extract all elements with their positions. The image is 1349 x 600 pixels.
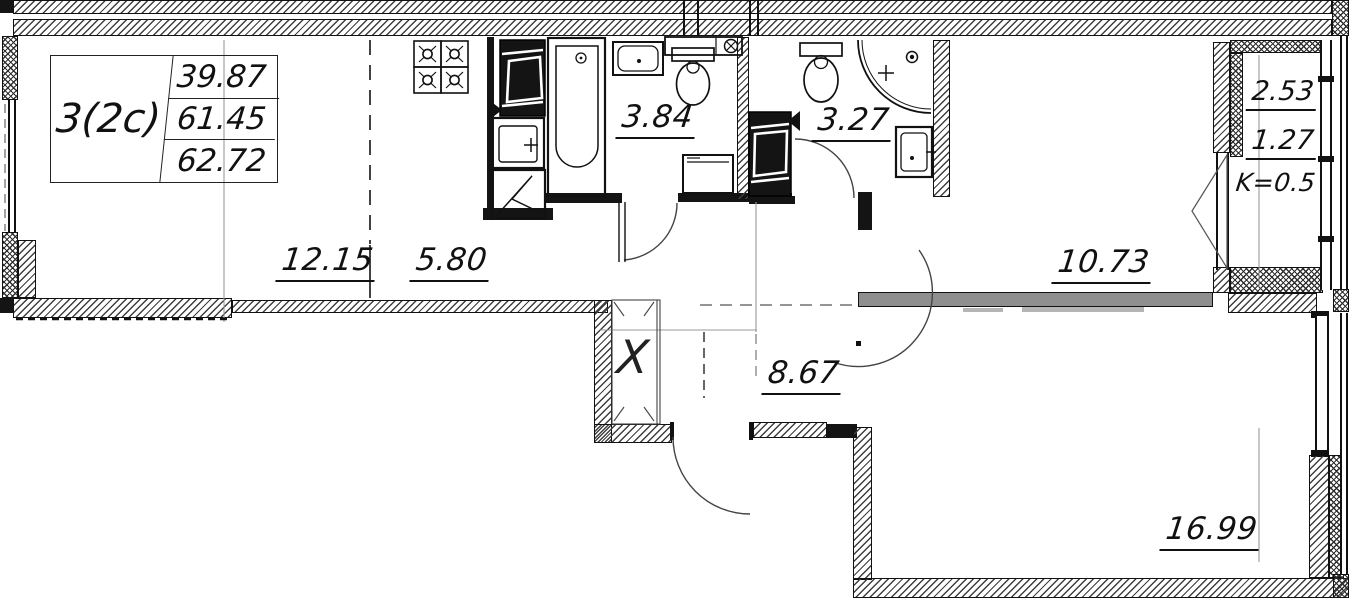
total-area-value: 62.72 (164, 140, 279, 182)
hinge-dot (856, 341, 861, 346)
laundry-sink-icon (492, 118, 544, 168)
door-arc-bathroom (619, 202, 677, 262)
room-area-bathroom: 3.84 (615, 99, 699, 139)
washing-machine-2-icon (749, 112, 791, 196)
washing-machine-icon (500, 40, 545, 116)
bathtub-icon (548, 38, 605, 196)
cabinet-icon (683, 155, 733, 193)
door-arc-entrance (673, 437, 750, 514)
balcony-area-full: 2.53 (1246, 76, 1320, 111)
door-arc-shower-room (795, 139, 854, 198)
room-area-bedroom: 10.73 (1051, 244, 1155, 284)
room-area-living: 12.15 (275, 242, 379, 282)
reference-lines (224, 40, 1259, 562)
vent-shelf-icon (665, 37, 742, 55)
room-area-shower-room: 3.27 (811, 102, 895, 142)
flat-type-label: 3(2c) (44, 56, 173, 182)
title-block: 3(2c) 39.87 61.45 62.72 (50, 55, 278, 183)
room-area-bedroom-large: 16.99 (1159, 511, 1263, 551)
wardrobe-symbol: X (615, 334, 651, 380)
living-area-value: 39.87 (164, 56, 279, 98)
toilet-icon (672, 48, 714, 105)
bathroom-sink-icon (613, 42, 663, 75)
stove-icon (414, 41, 468, 93)
balcony-door-triangle (1192, 155, 1227, 268)
balcony-area-counted: 1.27 (1246, 125, 1320, 160)
area-without-summer-value: 61.45 (164, 98, 279, 140)
toilet-2-icon (800, 43, 842, 102)
balcony-coefficient: K=0.5 (1234, 170, 1317, 195)
floor-plan: 3(2c) 39.87 61.45 62.72 12.15 5.80 3.84 … (0, 0, 1349, 600)
room-area-kitchen: 5.80 (409, 242, 493, 282)
water-heater-icon (492, 170, 545, 218)
room-area-hallway: 8.67 (761, 355, 845, 395)
shower-sink-icon (896, 127, 936, 177)
door-arc-room (833, 250, 932, 367)
